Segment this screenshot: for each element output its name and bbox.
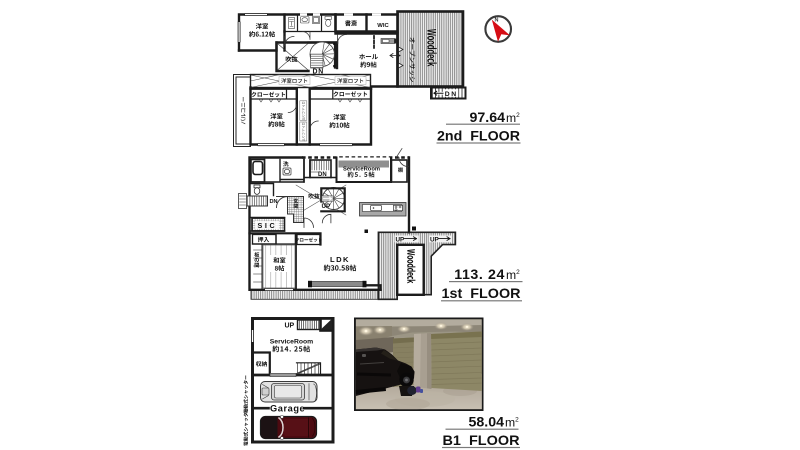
svg-text:2nd FLOOR: 2nd FLOOR (437, 128, 520, 144)
svg-text:DN: DN (270, 199, 278, 205)
svg-text:UP: UP (430, 236, 439, 243)
svg-text:97.64: 97.64 (469, 110, 505, 126)
svg-text:B1 FLOOR: B1 FLOOR (443, 432, 520, 448)
svg-text:UP: UP (285, 323, 295, 330)
svg-text:LDK: LDK (330, 255, 350, 264)
svg-text:DN: DN (318, 172, 327, 178)
svg-text:ServiceRoom: ServiceRoom (343, 167, 380, 173)
svg-text:58.04: 58.04 (468, 415, 504, 431)
svg-text:1st FLOOR: 1st FLOOR (442, 285, 521, 301)
svg-text:UP: UP (322, 203, 331, 210)
svg-text:SIC: SIC (258, 221, 278, 230)
svg-text:113. 24: 113. 24 (454, 267, 505, 283)
svg-text:DN: DN (445, 91, 458, 98)
svg-text:WIC: WIC (377, 23, 389, 29)
svg-text:ServiceRoom: ServiceRoom (270, 339, 313, 346)
svg-text:UP: UP (396, 236, 405, 243)
svg-text:Garage: Garage (270, 403, 305, 413)
svg-text:N: N (495, 18, 499, 24)
